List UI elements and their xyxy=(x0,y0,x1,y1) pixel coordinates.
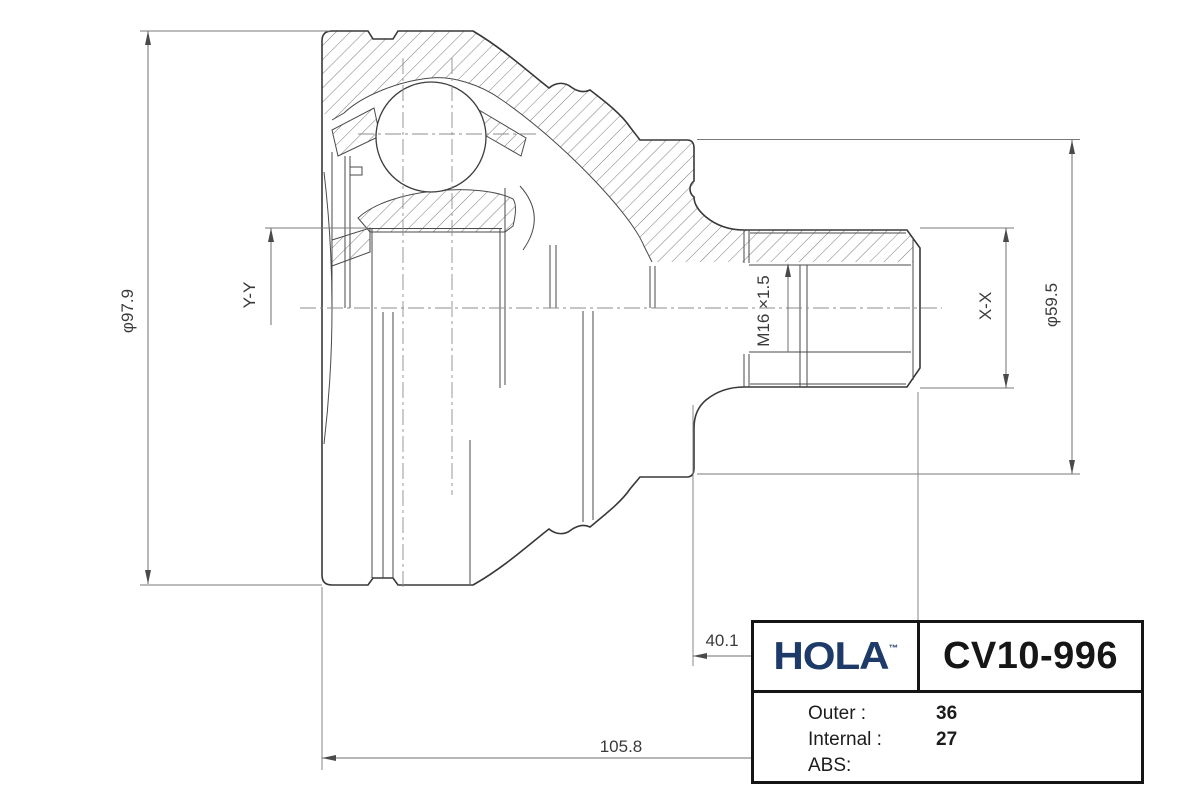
trademark-mark: ™ xyxy=(889,643,898,653)
dim-outer-diameter: φ97.9 xyxy=(118,289,137,333)
title-block: HOLA™ CV10-996 Outer : 36 Internal : 27 … xyxy=(751,620,1144,784)
bell-lip-section xyxy=(332,228,370,266)
drawing-canvas: φ97.9 Y-Y M16 ×1.5 X-X φ59.5 40.1 105.8 … xyxy=(0,0,1200,800)
dim-overall-length: 105.8 xyxy=(600,737,643,756)
race-back-arc xyxy=(520,186,534,250)
dim-section-xx: X-X xyxy=(976,292,995,320)
spec-row-abs: ABS: xyxy=(808,753,1141,779)
bearing-ball xyxy=(376,82,486,192)
brand-name: HOLA™ xyxy=(774,637,898,676)
dim-thread: M16 ×1.5 xyxy=(754,275,773,346)
spec-value: 27 xyxy=(936,727,957,753)
part-number: CV10-996 xyxy=(920,623,1141,690)
spec-label: Outer : xyxy=(808,701,936,727)
spec-value: 36 xyxy=(936,701,957,727)
dim-section-yy: Y-Y xyxy=(240,282,259,309)
spec-table: Outer : 36 Internal : 27 ABS: xyxy=(754,693,1141,779)
spec-label: Internal : xyxy=(808,727,936,753)
dim-thread-length: 40.1 xyxy=(705,631,738,650)
spec-row-outer: Outer : 36 xyxy=(808,701,1141,727)
spec-row-internal: Internal : 27 xyxy=(808,727,1141,753)
brand-logo: HOLA™ xyxy=(754,623,920,690)
inner-race-section xyxy=(358,190,516,232)
dim-flange-diameter: φ59.5 xyxy=(1042,283,1061,327)
spec-label: ABS: xyxy=(808,753,936,779)
